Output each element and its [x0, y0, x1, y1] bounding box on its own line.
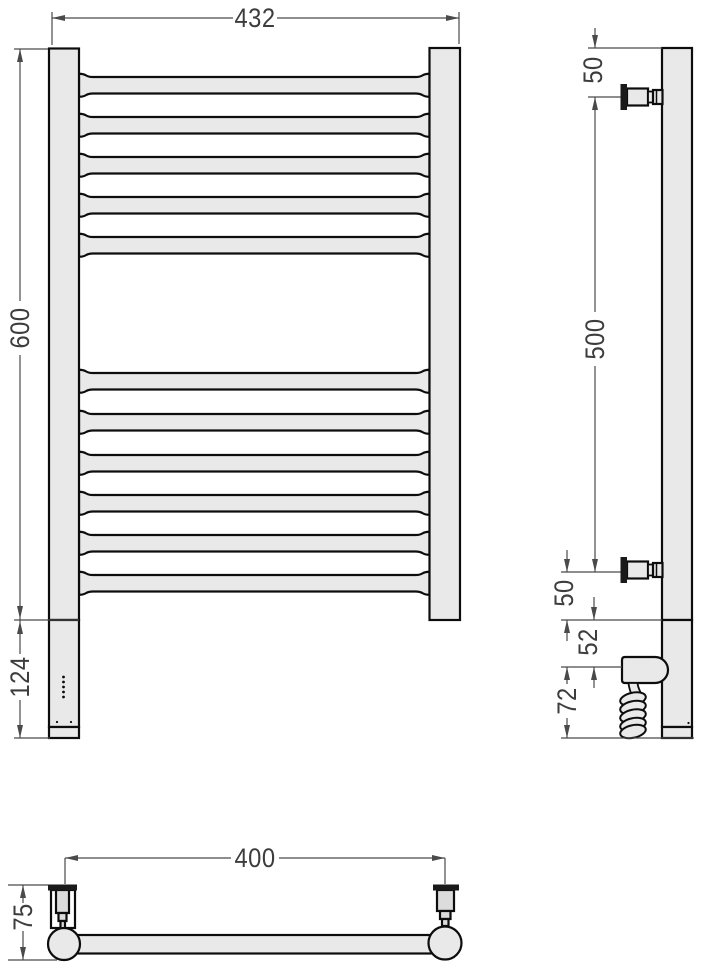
bracket-nut [653, 90, 663, 104]
bottom-view [48, 885, 462, 961]
front-right-post [430, 48, 461, 620]
dim-bracket-width-label: 400 [235, 844, 276, 874]
screw-dot [70, 721, 72, 723]
indicator-dot [62, 696, 65, 699]
towel-bar [79, 114, 430, 137]
dim-arrow [591, 607, 597, 620]
front-heater-body [49, 620, 79, 727]
towel-rail-technical-drawing: 432 600 124 50 500 50 52 72 400 75 [0, 0, 704, 970]
dim-joint-to-element-label: 52 [574, 628, 604, 655]
towel-bar [79, 370, 430, 393]
front-left-post [49, 49, 79, 621]
dim-arrow [20, 885, 26, 898]
dim-element-housing-label: 72 [553, 687, 583, 714]
dim-arrow [564, 559, 570, 572]
dim-arrow [432, 855, 445, 861]
screw-dot [687, 722, 689, 724]
dim-arrow [17, 725, 23, 738]
technical-drawing-page: 432 600 124 50 500 50 52 72 400 75 [0, 0, 704, 970]
dim-arrow [17, 49, 23, 62]
towel-bar [79, 452, 430, 475]
dim-arrow [65, 855, 78, 861]
dimension-annotations [8, 12, 694, 960]
dim-arrow [592, 35, 598, 48]
bottom-right-body [437, 890, 454, 911]
dim-arrow [591, 667, 597, 680]
towel-bar [79, 492, 430, 515]
bottom-right-flange [433, 885, 459, 891]
side-post [662, 48, 692, 620]
indicator-dot [62, 686, 65, 689]
towel-bar [79, 154, 430, 177]
dim-arrow [20, 947, 26, 960]
towel-bar [79, 234, 430, 257]
dim-arrow [17, 621, 23, 634]
dim-top-bracket-offset-label: 50 [579, 56, 609, 83]
dim-bracket-span-label: 500 [581, 319, 611, 360]
dim-arrow [52, 15, 65, 21]
dim-bottom-bracket-offset-label: 50 [550, 579, 580, 606]
towel-bar [79, 194, 430, 217]
bottom-left-post-section [48, 928, 80, 960]
dim-arrow [564, 725, 570, 738]
bottom-left-neck-1 [59, 913, 67, 921]
bracket-flange [621, 84, 628, 110]
bracket-flange [621, 557, 628, 583]
bottom-right-neck-2 [442, 919, 449, 926]
dim-arrow [592, 559, 598, 572]
bracket-body [627, 89, 648, 106]
bottom-left-flange [48, 885, 77, 891]
dim-arrow [564, 620, 570, 633]
indicator-dot [62, 691, 65, 694]
element-housing [622, 657, 668, 683]
screw-dot [56, 721, 58, 723]
dim-heater-length-label: 124 [6, 657, 36, 698]
towel-bar [79, 572, 430, 595]
towel-bar [79, 74, 430, 97]
indicator-dot [62, 681, 65, 684]
bottom-bar [64, 935, 445, 954]
dim-rail-height-label: 600 [6, 308, 36, 349]
front-heater-cap [49, 727, 79, 738]
bottom-right-post-section [429, 927, 462, 960]
bottom-left-cylinder [56, 890, 69, 913]
towel-bar [79, 411, 430, 434]
dim-arrow [17, 606, 23, 619]
dim-wall-depth-label: 75 [9, 903, 39, 930]
bracket-nut [653, 563, 663, 577]
side-heater-cap [662, 727, 692, 738]
dim-arrow [446, 15, 459, 21]
dim-arrow [592, 97, 598, 110]
dim-overall-width-label: 432 [235, 4, 276, 34]
side-view [619, 48, 692, 740]
dim-arrow [564, 667, 570, 680]
towel-bar [79, 532, 430, 555]
front-view [49, 48, 460, 738]
bracket-body [627, 562, 648, 579]
bottom-right-neck-1 [440, 911, 451, 919]
indicator-dot [62, 676, 65, 679]
